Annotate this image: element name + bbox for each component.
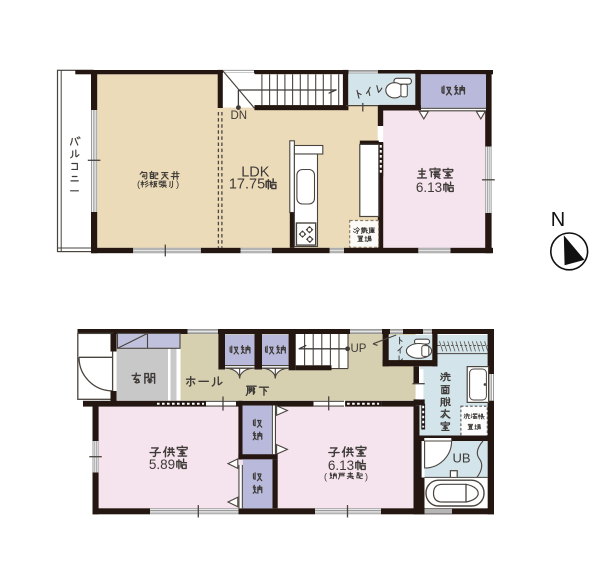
- svg-text:): ): [176, 179, 179, 190]
- svg-text:6.13: 6.13: [328, 458, 354, 473]
- svg-text:(: (: [324, 471, 327, 481]
- svg-text:N: N: [551, 209, 565, 231]
- svg-text:DN: DN: [230, 110, 247, 122]
- svg-text:): ): [365, 471, 368, 481]
- svg-text:5.89: 5.89: [149, 457, 175, 472]
- svg-text:UP: UP: [351, 343, 367, 355]
- svg-text:UB: UB: [452, 450, 470, 465]
- svg-text:6.13: 6.13: [416, 180, 442, 195]
- svg-text:17.75: 17.75: [229, 176, 265, 192]
